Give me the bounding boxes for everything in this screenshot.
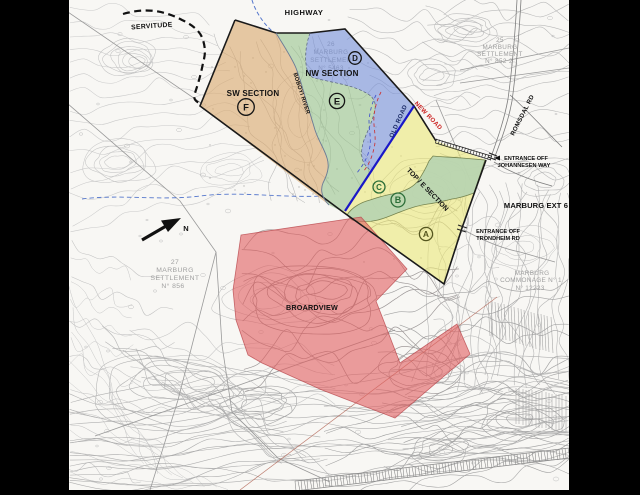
- svg-text:NW SECTION: NW SECTION: [305, 69, 358, 78]
- svg-text:B: B: [395, 195, 402, 205]
- svg-text:N° 856: N° 856: [161, 282, 184, 290]
- svg-text:F: F: [243, 102, 249, 113]
- svg-text:D: D: [352, 54, 358, 63]
- svg-text:SETTLEMENT: SETTLEMENT: [477, 51, 523, 58]
- svg-text:E: E: [334, 96, 340, 107]
- svg-text:BROARDVIEW: BROARDVIEW: [286, 303, 338, 312]
- svg-text:HIGHWAY: HIGHWAY: [285, 8, 324, 17]
- svg-text:JOHANNESEN WAY: JOHANNESEN WAY: [498, 163, 551, 169]
- svg-text:ENTRANCE OFF: ENTRANCE OFF: [476, 229, 520, 235]
- svg-text:N: N: [183, 224, 188, 233]
- svg-text:27: 27: [171, 259, 179, 266]
- svg-text:MARBURG: MARBURG: [515, 270, 550, 277]
- svg-text:25: 25: [496, 37, 504, 44]
- svg-text:C: C: [376, 183, 382, 192]
- svg-text:N° 852 2: N° 852 2: [485, 57, 513, 65]
- svg-text:TRONDHEIM RD: TRONDHEIM RD: [476, 236, 520, 242]
- svg-text:ENTRANCE OFF: ENTRANCE OFF: [504, 156, 548, 162]
- svg-text:MARBURG: MARBURG: [483, 44, 518, 51]
- svg-text:COMMONAGE N° 1: COMMONAGE N° 1: [500, 276, 562, 284]
- svg-text:MARBURG EXT 6: MARBURG EXT 6: [504, 201, 568, 210]
- svg-text:SW SECTION: SW SECTION: [227, 89, 280, 98]
- svg-text:N° 12223: N° 12223: [515, 284, 544, 292]
- svg-text:MARBURG: MARBURG: [156, 267, 194, 274]
- svg-text:A: A: [423, 229, 429, 239]
- svg-text:SETTLEMENT: SETTLEMENT: [151, 275, 200, 282]
